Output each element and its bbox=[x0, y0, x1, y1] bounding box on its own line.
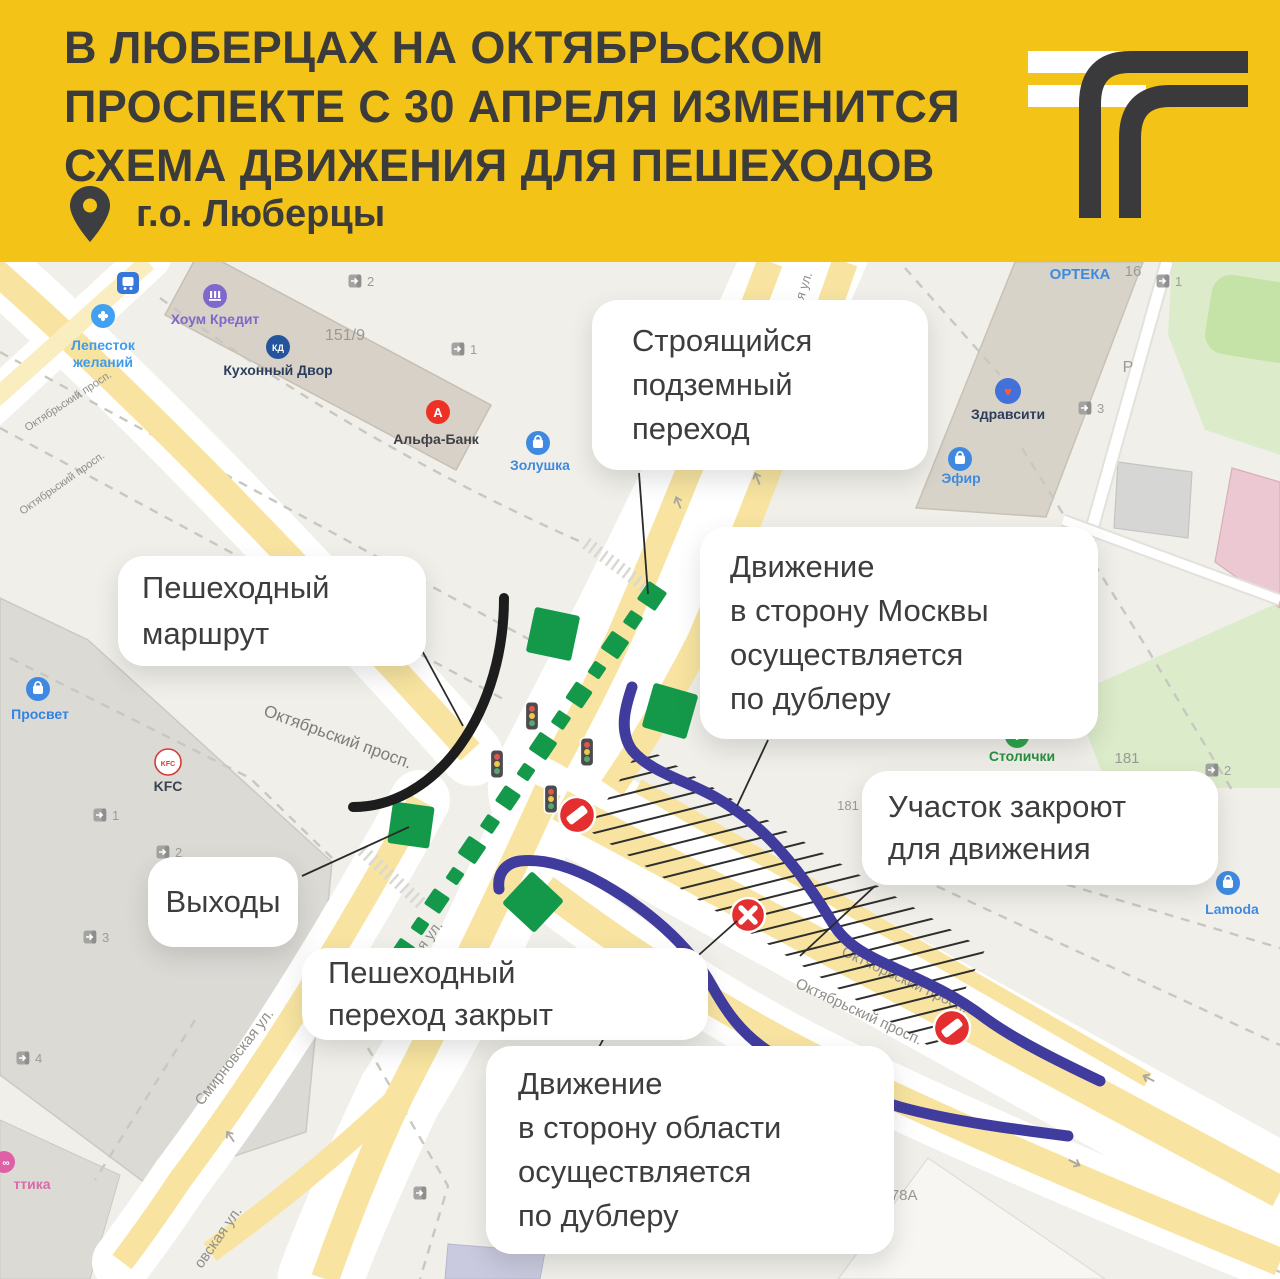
svg-text:1: 1 bbox=[1175, 274, 1182, 289]
callout-closed-section: Участок закроютдля движения bbox=[862, 771, 1218, 885]
svg-text:181: 181 bbox=[1114, 750, 1139, 767]
map-pin-icon bbox=[70, 186, 110, 242]
svg-text:2: 2 bbox=[1224, 763, 1231, 778]
svg-text:KFC: KFC bbox=[154, 778, 183, 794]
svg-text:Р: Р bbox=[1123, 359, 1134, 376]
exit-square-3 bbox=[387, 801, 434, 848]
svg-text:151/9: 151/9 bbox=[325, 327, 365, 344]
svg-text:Кухонный Двор: Кухонный Двор bbox=[223, 362, 332, 378]
header-banner: В ЛЮБЕРЦАХ НА ОКТЯБРЬСКОМ ПРОСПЕКТЕ С 30… bbox=[0, 0, 1280, 262]
svg-text:3: 3 bbox=[1097, 401, 1104, 416]
building-small-gray bbox=[1114, 462, 1192, 538]
svg-text:∞: ∞ bbox=[2, 1158, 9, 1169]
svg-text:1: 1 bbox=[470, 342, 477, 357]
svg-text:А: А bbox=[433, 405, 443, 420]
callout-exits: Выходы bbox=[148, 857, 298, 947]
svg-text:♥: ♥ bbox=[1004, 384, 1012, 399]
svg-text:KFC: KFC bbox=[161, 761, 175, 768]
svg-text:181: 181 bbox=[837, 798, 859, 813]
page-title: В ЛЮБЕРЦАХ НА ОКТЯБРЬСКОМ ПРОСПЕКТЕ С 30… bbox=[64, 18, 960, 195]
svg-text:Lamoda: Lamoda bbox=[1205, 901, 1259, 917]
svg-text:16: 16 bbox=[1125, 263, 1142, 280]
closed-crossing-sign bbox=[731, 898, 765, 932]
svg-text:4: 4 bbox=[35, 1051, 42, 1066]
svg-text:3: 3 bbox=[102, 930, 109, 945]
svg-text:Золушка: Золушка bbox=[510, 457, 570, 473]
svg-text:Альфа-Банк: Альфа-Банк bbox=[393, 431, 480, 447]
svg-text:1: 1 bbox=[112, 808, 119, 823]
svg-text:2: 2 bbox=[367, 274, 374, 289]
svg-text:КД: КД bbox=[272, 343, 284, 353]
svg-text:Эфир: Эфир bbox=[941, 470, 980, 486]
svg-text:Столички: Столички bbox=[989, 748, 1055, 764]
poi-orteka: ОРТЕКА bbox=[1050, 266, 1111, 283]
svg-text:Просвет: Просвет bbox=[11, 706, 69, 722]
svg-text:Лепесток: Лепесток bbox=[71, 337, 136, 353]
callout-to-region-detour: Движениев сторону областиосуществляетсяп… bbox=[486, 1046, 894, 1254]
location-label: г.о. Люберцы bbox=[136, 193, 385, 236]
svg-text:Хоум Кредит: Хоум Кредит bbox=[171, 311, 260, 327]
svg-text:желаний: желаний bbox=[72, 354, 133, 370]
svg-text:Здравсити: Здравсити bbox=[971, 406, 1045, 422]
location-row: г.о. Люберцы bbox=[70, 186, 385, 242]
svg-text:ттика: ттика bbox=[13, 1176, 50, 1192]
callout-to-moscow-detour: Движениев сторону Москвыосуществляетсяпо… bbox=[700, 527, 1098, 739]
callout-pedestrian-route: Пешеходныймаршрут bbox=[118, 556, 426, 666]
callout-under-construction: Строящийсяподземныйпереход bbox=[592, 300, 928, 470]
exit-square-1 bbox=[526, 607, 581, 662]
transit-stop-icon bbox=[117, 272, 139, 294]
transport-logo bbox=[1028, 26, 1248, 218]
infographic: В ЛЮБЕРЦАХ НА ОКТЯБРЬСКОМ ПРОСПЕКТЕ С 30… bbox=[0, 0, 1280, 1279]
callout-closed-crossing: Пешеходныйпереход закрыт bbox=[302, 948, 708, 1040]
